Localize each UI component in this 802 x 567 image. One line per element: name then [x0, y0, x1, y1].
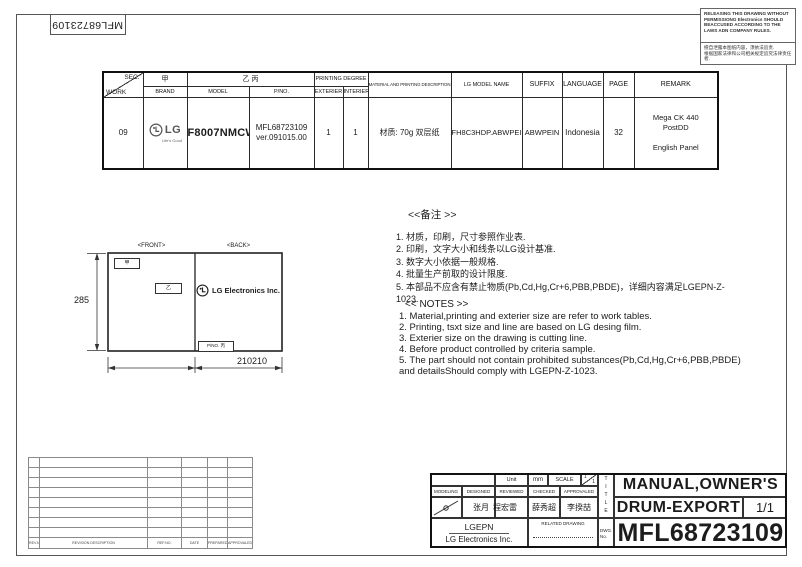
- height-dimension: 285: [74, 295, 89, 305]
- designed-reviewed-signatures: 张月 程宏雷: [462, 497, 528, 518]
- company-short: LGEPN: [449, 522, 510, 534]
- spec-value-model: F8007NMCW: [187, 97, 249, 169]
- spec-header-brand: BRAND: [143, 86, 187, 97]
- spec-value-pno-line1: MFL68723109: [250, 123, 314, 133]
- title-vertical-text: TITLE: [603, 476, 609, 516]
- reviewed-label: REVIEWED: [495, 486, 528, 497]
- notes-chinese-item-3: 3. 数字大小依据一般规格.: [396, 256, 736, 268]
- notes-chinese-item-1: 1. 材质，印刷，尺寸参照作业表.: [396, 231, 736, 243]
- related-drawing-label: RELATED DRAWING: [529, 521, 597, 526]
- back-panel-logo-text: LG Electronics Inc.: [212, 286, 280, 295]
- spec-header-work: WORK: [106, 89, 126, 96]
- scale-label: SCALE: [548, 473, 581, 486]
- spec-header-model: MODEL: [187, 86, 249, 97]
- spec-header-pno: P/NO.: [249, 86, 314, 97]
- width-dimension: 210210: [226, 356, 278, 366]
- reviewed-signature: 程宏雷: [493, 502, 517, 513]
- top-left-part-number-box: MFL68723109: [50, 14, 126, 35]
- notes-english-item-4: 4. Before product controlled by criteria…: [399, 344, 744, 355]
- notes-english: << NOTES >> 1. Material,printing and ext…: [399, 299, 744, 377]
- spec-header-exterier: EXTERIER: [314, 86, 343, 97]
- spec-value-suffix: ABWPEIN: [522, 97, 562, 169]
- spec-value-brand: LG Life's Good: [143, 97, 187, 169]
- spec-value-interier: 1: [343, 97, 368, 169]
- lg-logo-icon: [149, 123, 163, 137]
- spec-header-sec-work: SEC. WORK: [103, 72, 143, 97]
- approvaled-signature: 李揆喆: [560, 497, 598, 518]
- spec-header-interier: INTERIER: [343, 86, 368, 97]
- spec-header-suffix: SUFFIX: [522, 72, 562, 97]
- related-drawing-cell: RELATED DRAWING: [528, 518, 598, 548]
- revision-header-approvaled: APPROVALED: [228, 538, 253, 549]
- drawing-sheet: MFL68723109 RELEASING THIS DRAWING WITHO…: [0, 0, 802, 567]
- pno-marker-box: P/NO. 丙: [198, 341, 234, 352]
- spec-header-page: PAGE: [603, 72, 634, 97]
- disclaimer-english: RELEASING THIS DRAWING WITHOUT PERMISSIO…: [700, 8, 796, 44]
- notes-english-title: << NOTES >>: [405, 299, 744, 310]
- dwg-label-line2: No.: [600, 534, 607, 539]
- disclaimer-chinese: 擅自泄露本图纸内容，须依法追责. 根据国家法律和公司相关规定追究法律责任者.: [700, 42, 796, 65]
- related-drawing-dotted-line: [533, 537, 593, 538]
- revision-table: REV.NO. REVISION DESCRIPTION REF.NO. DAT…: [28, 457, 253, 549]
- spec-header-lg-model-name: LG MODEL NAME: [451, 72, 522, 97]
- checked-signature: 薛秀超: [528, 497, 560, 518]
- spec-table: SEC. WORK 甲 乙 丙 PRINTING DEGREE MATERIAL…: [102, 71, 719, 170]
- sheet-count: 1/1: [743, 497, 787, 518]
- spec-header-printing-degree: PRINTING DEGREE: [314, 72, 368, 86]
- spec-header-material: MATERIAL AND PRINTING DESCRIPTION: [368, 72, 451, 97]
- unit-value: mm: [528, 473, 548, 486]
- revision-header-date: DATE: [182, 538, 208, 549]
- spec-value-pno: MFL68723109 ver.091015.00: [249, 97, 314, 169]
- notes-chinese-item-2: 2. 印刷，文字大小和线条以LG设计基准.: [396, 243, 736, 255]
- top-left-part-number: MFL68723109: [52, 19, 123, 31]
- revision-header-prepared: PREPARED: [208, 538, 228, 549]
- document-title-line2: DRUM-EXPORT: [614, 497, 743, 518]
- revision-header-description: REVISION DESCRIPTION: [40, 538, 148, 549]
- spec-value-work-sec: 09: [103, 97, 143, 169]
- lg-logo-icon: [196, 284, 209, 297]
- title-block-empty-cell: [430, 473, 495, 486]
- yi-marker-box: 乙: [155, 283, 182, 294]
- disclaimer-chinese-line2: 根据国家法律和公司相关规定追究法律责任者.: [704, 51, 792, 62]
- spec-value-pno-line2: ver.091015.00: [250, 133, 314, 143]
- front-panel-label: <FRONT>: [108, 243, 195, 249]
- document-title-line1: MANUAL,OWNER'S: [614, 473, 787, 497]
- title-block: Unit mm SCALE 1 1 MODELING DESIGNED REVI…: [430, 473, 787, 548]
- spec-value-remark: Mega CK 440 PostDD English Panel: [634, 97, 718, 169]
- notes-english-item-2: 2. Printing, tsxt size and line are base…: [399, 322, 744, 333]
- drawing-number: MFL68723109: [614, 518, 787, 548]
- scale-denominator: 1: [592, 479, 595, 485]
- notes-english-item-1: 1. Material,printing and exterier size a…: [399, 311, 744, 322]
- modeling-signature: [430, 497, 462, 518]
- notes-english-item-3: 3. Exterier size on the drawing is cutti…: [399, 333, 744, 344]
- spec-value-lg-model-name: FH8C3HDP.ABWPEIN: [451, 97, 522, 169]
- revision-header-rev-no: REV.NO.: [29, 538, 40, 549]
- back-panel-logo: LG Electronics Inc.: [196, 283, 280, 297]
- notes-chinese: <<备注 >> 1. 材质，印刷，尺寸参照作业表. 2. 印刷，文字大小和线条以…: [396, 207, 736, 305]
- notes-english-item-5: 5. The part should not contain prohibite…: [399, 355, 744, 377]
- spec-header-remark: REMARK: [634, 72, 718, 97]
- notes-chinese-title: <<备注 >>: [408, 207, 736, 222]
- company-full: LG Electronics Inc.: [445, 535, 512, 544]
- unit-label: Unit: [495, 473, 528, 486]
- scale-value: 1 1: [581, 473, 598, 486]
- spec-value-exterier: 1: [314, 97, 343, 169]
- checked-label: CHECKED: [528, 486, 560, 497]
- spec-header-sec: SEC.: [124, 74, 139, 81]
- modeling-label: MODELING: [430, 486, 462, 497]
- revision-header-row: REV.NO. REVISION DESCRIPTION REF.NO. DAT…: [29, 538, 253, 549]
- title-vertical-label: TITLE: [598, 473, 614, 518]
- approvaled-label: APPROVALED: [560, 486, 598, 497]
- lg-logo-text: LG: [165, 124, 181, 136]
- designed-label: DESIGNED: [462, 486, 495, 497]
- designed-signature: 张月: [473, 502, 489, 513]
- scale-numerator: 1: [584, 474, 587, 480]
- notes-chinese-item-4: 4. 批量生产前取的设计限度.: [396, 268, 736, 280]
- spec-value-material: 材质: 70g 双层纸: [368, 97, 451, 169]
- jia-marker-box: 甲: [114, 258, 140, 269]
- spec-value-language: Indonesia: [562, 97, 603, 169]
- dwg-label-line1: DWG.: [600, 528, 612, 533]
- spec-header-yi-bing: 乙 丙: [187, 72, 314, 86]
- lg-tagline: Life's Good: [162, 138, 182, 143]
- signature-slash-icon: [431, 498, 461, 517]
- back-panel-label: <BACK>: [195, 243, 282, 249]
- dwg-no-label: DWG. No.: [598, 518, 614, 548]
- spec-value-page: 32: [603, 97, 634, 169]
- revision-header-ref-no: REF.NO.: [148, 538, 182, 549]
- spec-header-jia: 甲: [143, 72, 187, 86]
- spec-header-language: LANGUAGE: [562, 72, 603, 97]
- company-cell: LGEPN LG Electronics Inc.: [430, 518, 528, 548]
